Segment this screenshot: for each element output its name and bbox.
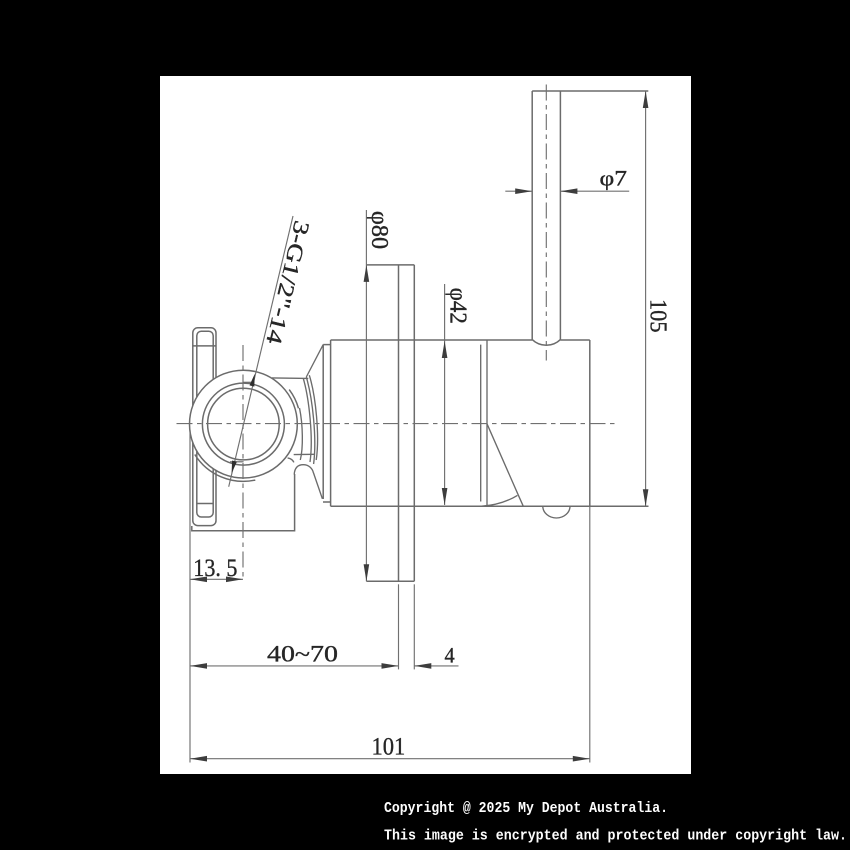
svg-text:φ80: φ80 [366, 211, 392, 249]
svg-text:105: 105 [645, 299, 671, 333]
svg-text:40~70: 40~70 [267, 642, 338, 667]
svg-text:101: 101 [372, 734, 406, 761]
svg-text:φ7: φ7 [600, 166, 628, 191]
svg-text:4: 4 [445, 642, 455, 667]
svg-text:Copyright @ 2025 My Depot Aust: Copyright @ 2025 My Depot Australia. [384, 801, 668, 817]
svg-text:13. 5: 13. 5 [193, 555, 237, 582]
svg-text:This image is encrypted and pr: This image is encrypted and protected un… [384, 829, 847, 845]
svg-text:φ42: φ42 [445, 288, 471, 324]
